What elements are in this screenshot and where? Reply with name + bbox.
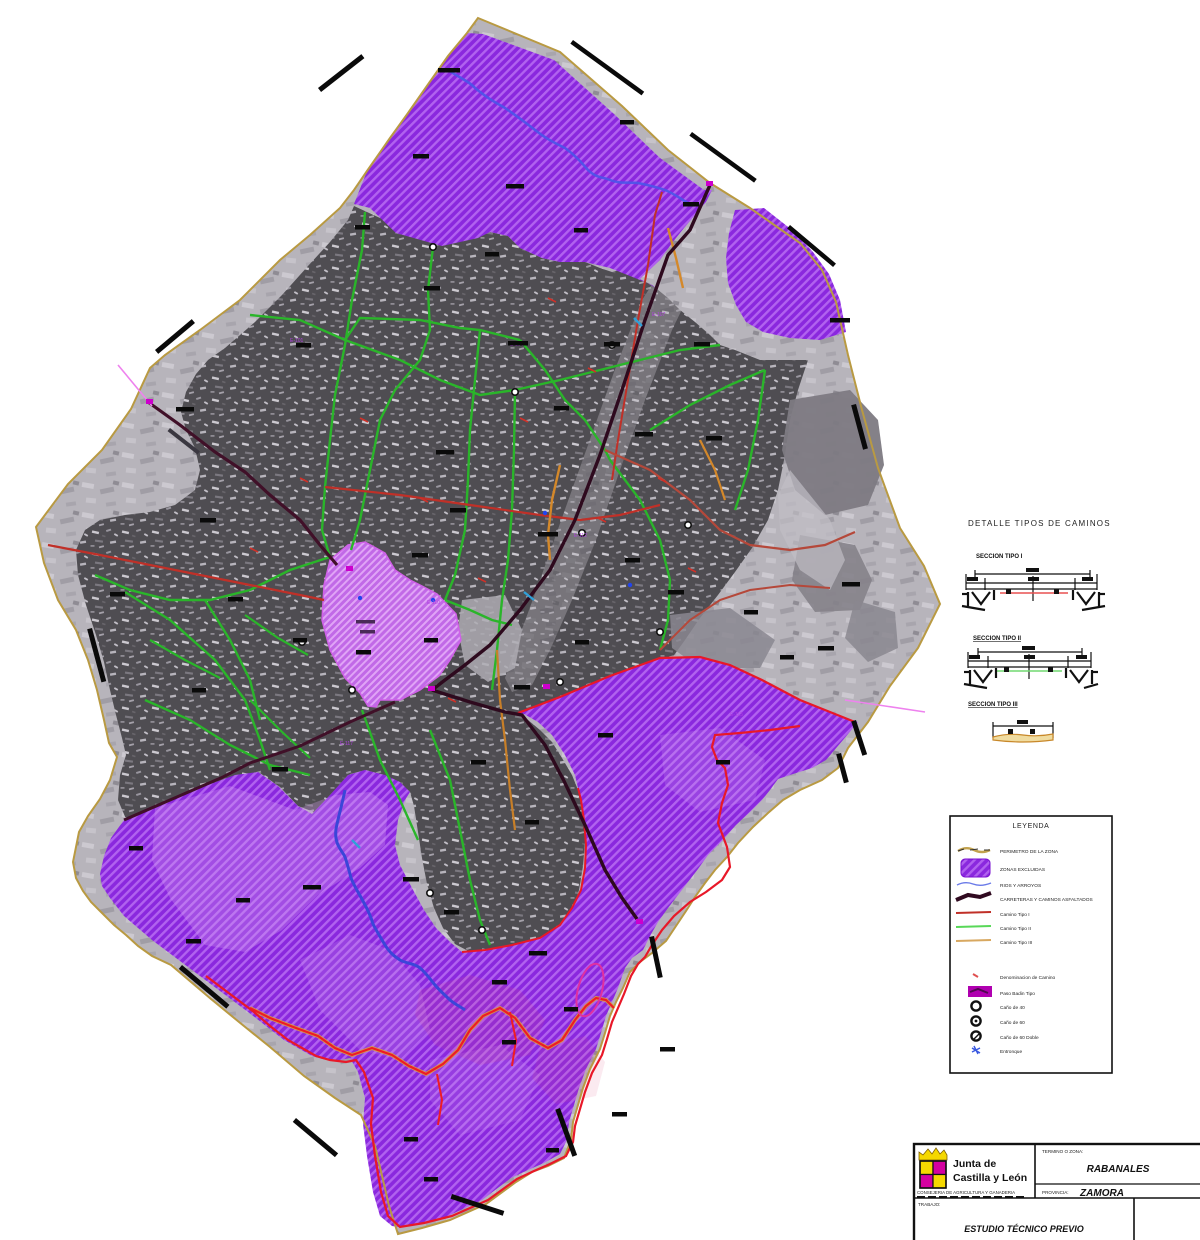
svg-text:Entronque: Entronque xyxy=(1000,1049,1022,1055)
svg-text:ZONAS EXCLUIDAS: ZONAS EXCLUIDAS xyxy=(1000,867,1045,873)
svg-text:Denominacion de Camino: Denominacion de Camino xyxy=(1000,975,1056,981)
svg-text:SECCION TIPO III: SECCION TIPO III xyxy=(968,702,1018,708)
svg-text:E-112: E-112 xyxy=(574,533,587,539)
svg-text:Caño de 40: Caño de 40 xyxy=(1000,1005,1025,1011)
svg-text:PROVINCIA:: PROVINCIA: xyxy=(1042,1190,1069,1195)
svg-text:TERMINO O ZONA:: TERMINO O ZONA: xyxy=(1042,1149,1083,1154)
svg-text:DETALLE TIPOS DE CAMINOS: DETALLE TIPOS DE CAMINOS xyxy=(968,519,1111,528)
svg-text:Caño de 60: Caño de 60 xyxy=(1000,1020,1025,1026)
svg-text:TRABAJO:: TRABAJO: xyxy=(918,1202,940,1207)
svg-text:RABANALES: RABANALES xyxy=(1087,1164,1150,1175)
svg-text:SECCION TIPO II: SECCION TIPO II xyxy=(973,636,1021,642)
svg-text:PERIMETRO DE LA ZONA: PERIMETRO DE LA ZONA xyxy=(1000,849,1059,855)
svg-text:CARRETERAS Y CAMINOS ASFALTADO: CARRETERAS Y CAMINOS ASFALTADOS xyxy=(1000,897,1093,903)
svg-text:E-115: E-115 xyxy=(730,712,743,718)
svg-text:E-107: E-107 xyxy=(652,312,666,318)
svg-text:LEYENDA: LEYENDA xyxy=(1013,823,1050,830)
svg-text:Castilla y León: Castilla y León xyxy=(953,1172,1027,1184)
svg-text:Caño de 60 Doble: Caño de 60 Doble xyxy=(1000,1035,1039,1041)
svg-text:ESTUDIO TÉCNICO PREVIO: ESTUDIO TÉCNICO PREVIO xyxy=(964,1224,1084,1234)
svg-text:Camino Tipo I: Camino Tipo I xyxy=(1000,912,1030,918)
svg-text:CONSEJERIA DE AGRICULTURA Y GA: CONSEJERIA DE AGRICULTURA Y GANADERIA xyxy=(917,1190,1015,1195)
svg-text:Paso Badin Tipo: Paso Badin Tipo xyxy=(1000,991,1035,997)
svg-text:Camino Tipo III: Camino Tipo III xyxy=(1000,940,1032,946)
svg-text:E-110: E-110 xyxy=(427,600,440,606)
svg-text:E-117: E-117 xyxy=(340,741,353,747)
svg-text:Camino Tipo II: Camino Tipo II xyxy=(1000,926,1031,932)
svg-text:Junta de: Junta de xyxy=(953,1158,996,1170)
svg-text:SECCION TIPO I: SECCION TIPO I xyxy=(976,554,1023,560)
svg-text:ZAMORA: ZAMORA xyxy=(1079,1188,1124,1199)
svg-text:RIOS Y ARROYOS: RIOS Y ARROYOS xyxy=(1000,883,1041,889)
